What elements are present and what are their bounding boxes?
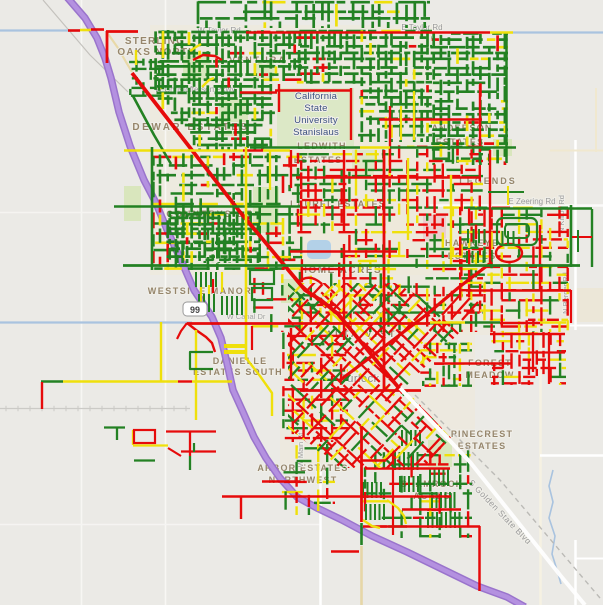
svg-text:PINECREST: PINECREST	[451, 429, 513, 439]
svg-text:DANIELLE: DANIELLE	[213, 356, 268, 366]
svg-text:MEADOW: MEADOW	[465, 370, 514, 380]
svg-text:VENTURA: VENTURA	[229, 55, 287, 65]
svg-text:99: 99	[190, 305, 200, 315]
svg-text:State: State	[304, 103, 327, 114]
svg-text:California: California	[295, 91, 338, 102]
svg-text:Stanislaus: Stanislaus	[293, 127, 339, 138]
svg-text:ESTATES: ESTATES	[458, 441, 507, 451]
svg-text:E Zeering Rd: E Zeering Rd	[508, 197, 555, 206]
svg-text:University: University	[294, 115, 338, 126]
svg-text:ESTATES: ESTATES	[436, 137, 485, 147]
svg-text:LEDWITH: LEDWITH	[297, 141, 346, 151]
